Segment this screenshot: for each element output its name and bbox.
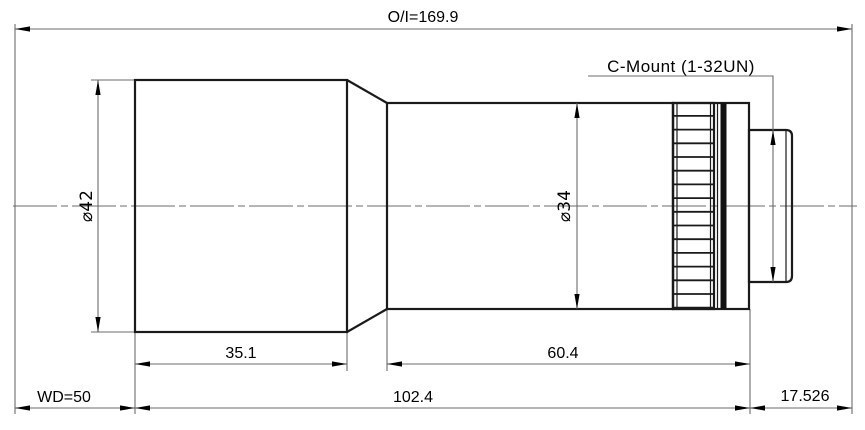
mount-label: C-Mount (1-32UN): [607, 57, 755, 76]
front-length-label: 35.1: [225, 345, 256, 362]
dia42-top-arrow: [95, 80, 100, 95]
rear-length-label: 60.4: [547, 345, 578, 362]
front-length-left-arrow: [135, 361, 150, 366]
dia34-bottom-arrow: [574, 294, 579, 309]
main-diameter-label: ⌀34: [555, 190, 575, 222]
overall-left-arrow: [15, 26, 30, 31]
back-distance-right-arrow: [837, 405, 852, 410]
overall-distance-label: O/I=169.9: [388, 9, 459, 26]
front-length-right-arrow: [332, 361, 347, 366]
lens-technical-drawing: O/I=169.9 C-Mount (1-32UN) ⌀42 ⌀34 35.1 …: [0, 0, 865, 430]
overall-right-arrow: [837, 26, 852, 31]
dia34-top-arrow: [574, 103, 579, 118]
rear-length-right-arrow: [735, 361, 750, 366]
body-length-right-arrow: [735, 405, 750, 410]
thread-top-arrow: [770, 130, 775, 145]
wd-right-arrow: [120, 405, 135, 410]
rear-length-left-arrow: [387, 361, 402, 366]
front-diameter-label: ⌀42: [77, 190, 97, 222]
dia42-bottom-arrow: [95, 317, 100, 332]
back-distance-left-arrow: [750, 405, 765, 410]
thread-bottom-arrow: [770, 267, 775, 282]
drawing-canvas: O/I=169.9 C-Mount (1-32UN) ⌀42 ⌀34 35.1 …: [0, 0, 865, 430]
lock-ring-band: [721, 103, 727, 309]
wd-left-arrow: [15, 405, 30, 410]
mount-leader-line: [588, 76, 773, 282]
back-distance-label: 17.526: [781, 388, 830, 405]
working-distance-label: WD=50: [37, 389, 91, 406]
body-length-left-arrow: [135, 405, 150, 410]
body-length-label: 102.4: [393, 389, 433, 406]
